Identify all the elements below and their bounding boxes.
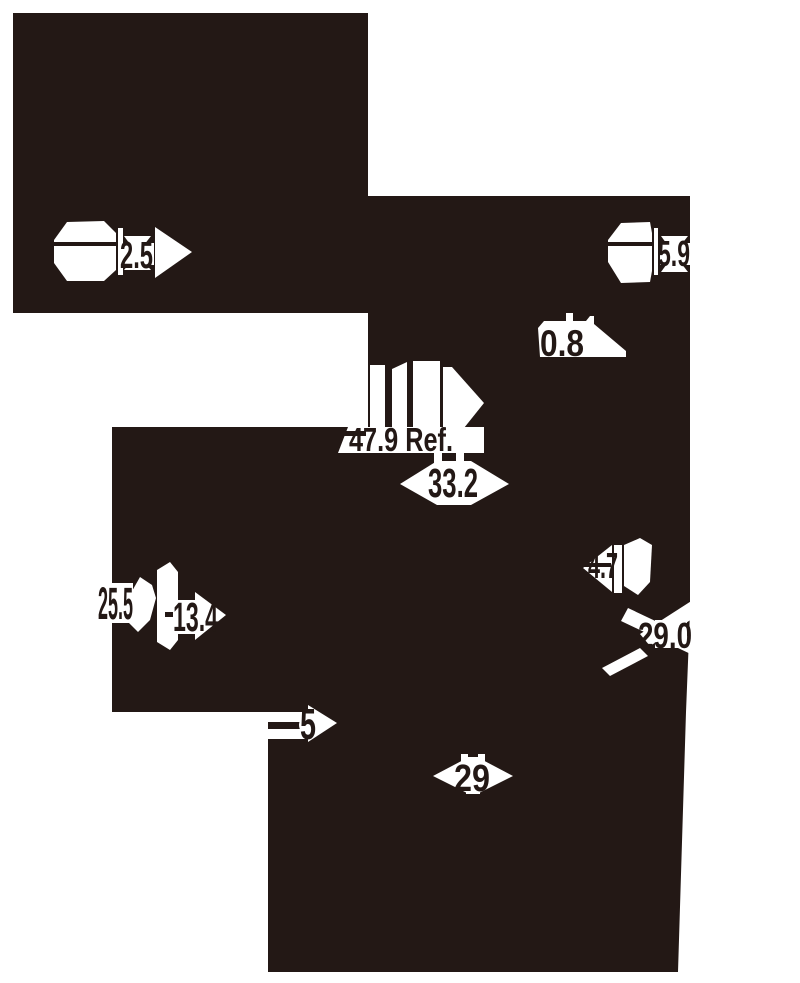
- dim-lower-left-value: 13.4: [173, 594, 218, 640]
- thread-bar: [370, 365, 385, 427]
- dim-body-width-value: 33.2: [428, 460, 478, 506]
- dim-tab-value: 4.7: [588, 545, 618, 586]
- drawing-silhouette: [13, 13, 690, 972]
- technical-drawing-canvas: 2.5 5.9 0.8 47.9 Ref. 33.2: [0, 0, 800, 983]
- thread-bar: [392, 362, 407, 427]
- extension-tick: [566, 313, 573, 323]
- dim-bottom-width-value: 29: [454, 758, 490, 800]
- dim-step-value: 5: [300, 700, 316, 749]
- dim-left-hex-value: 2.5: [120, 235, 153, 277]
- dim-flange-value: 29.0: [638, 615, 692, 656]
- dim-upper-left-value: 25.5: [98, 578, 133, 629]
- leader-dash: [165, 612, 173, 617]
- dim-chamfer-value: 0.8: [540, 323, 584, 364]
- prism-edge-line: [54, 242, 116, 246]
- dim-right-hex-value: 5.9: [658, 233, 690, 274]
- prism-edge-line: [608, 242, 653, 246]
- drawing-page: 2.5 5.9 0.8 47.9 Ref. 33.2: [0, 0, 800, 983]
- hex-prism-shape: [54, 221, 116, 281]
- thread-bar: [413, 361, 440, 427]
